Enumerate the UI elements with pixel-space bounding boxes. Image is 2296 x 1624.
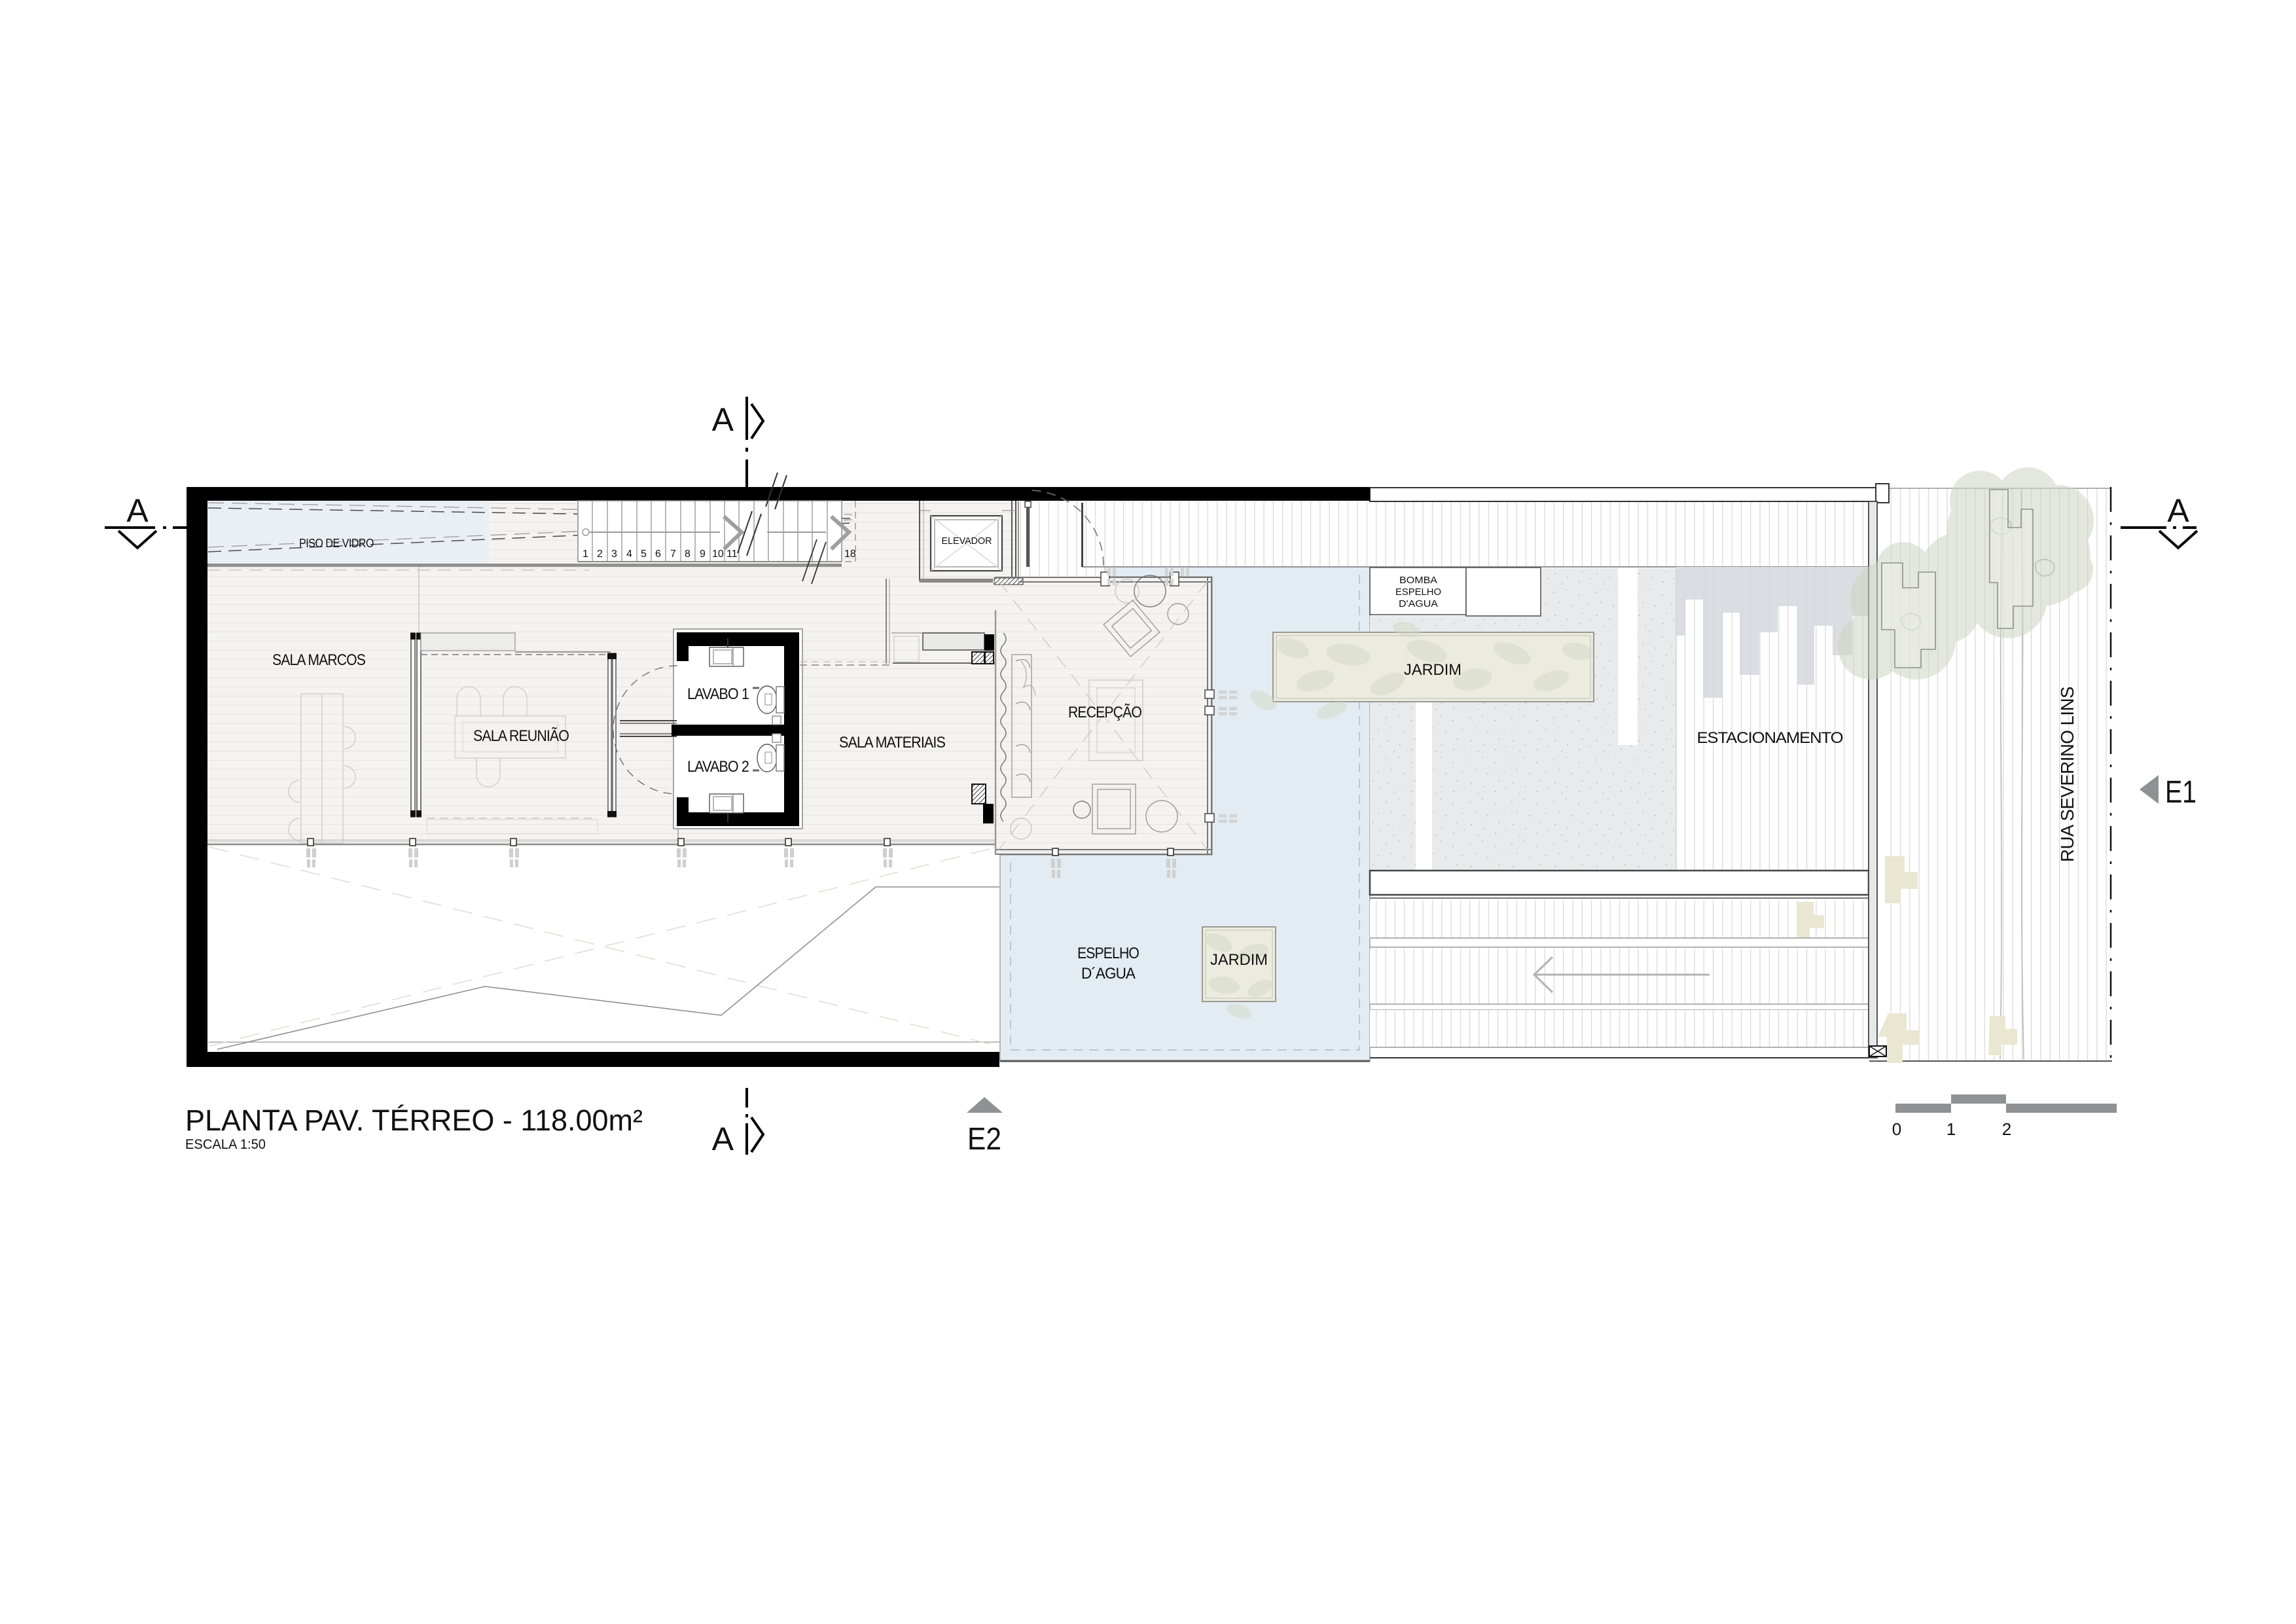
svg-text:1: 1 <box>1946 1119 1956 1139</box>
svg-text:E1: E1 <box>2165 775 2197 810</box>
svg-text:SALA REUNIÃO: SALA REUNIÃO <box>473 727 569 745</box>
svg-text:PLANTA PAV. TÉRREO - 118.00m²: PLANTA PAV. TÉRREO - 118.00m² <box>185 1104 643 1137</box>
svg-text:6: 6 <box>655 549 661 560</box>
svg-text:A: A <box>712 1121 734 1157</box>
svg-text:10: 10 <box>712 549 724 560</box>
svg-text:ELEVADOR: ELEVADOR <box>942 535 992 547</box>
svg-text:LAVABO 1: LAVABO 1 <box>687 685 749 703</box>
svg-text:PISO DE VIDRO: PISO DE VIDRO <box>299 537 374 550</box>
svg-text:ESCALA 1:50: ESCALA 1:50 <box>185 1137 266 1152</box>
svg-text:D´AGUA: D´AGUA <box>1081 965 1136 983</box>
svg-text:A: A <box>712 401 734 438</box>
svg-text:2: 2 <box>2002 1119 2011 1139</box>
svg-text:A: A <box>126 492 149 529</box>
svg-text:ESPELHO: ESPELHO <box>1395 586 1441 598</box>
svg-text:D'AGUA: D'AGUA <box>1399 598 1438 609</box>
svg-text:LAVABO 2: LAVABO 2 <box>687 758 749 776</box>
svg-text:1: 1 <box>583 549 588 560</box>
svg-text:7: 7 <box>670 549 676 560</box>
svg-text:JARDIM: JARDIM <box>1404 661 1462 679</box>
svg-text:8: 8 <box>685 549 691 560</box>
svg-text:4: 4 <box>626 549 632 560</box>
svg-text:JARDIM: JARDIM <box>1210 951 1268 969</box>
svg-text:2: 2 <box>597 549 603 560</box>
svg-text:RECEPÇÃO: RECEPÇÃO <box>1068 704 1141 721</box>
svg-text:ESTACIONAMENTO: ESTACIONAMENTO <box>1697 729 1843 747</box>
svg-text:SALA MARCOS: SALA MARCOS <box>272 651 365 669</box>
svg-text:18: 18 <box>844 549 856 560</box>
svg-text:RUA SEVERINO LINS: RUA SEVERINO LINS <box>2057 687 2077 862</box>
svg-text:A: A <box>2167 492 2189 529</box>
svg-text:5: 5 <box>641 549 647 560</box>
svg-text:E2: E2 <box>967 1122 1001 1157</box>
svg-text:ESPELHO: ESPELHO <box>1077 945 1139 962</box>
svg-text:9: 9 <box>700 549 706 560</box>
svg-text:11: 11 <box>726 549 738 560</box>
svg-text:0: 0 <box>1892 1119 1901 1139</box>
svg-text:SALA MATERIAIS: SALA MATERIAIS <box>839 734 945 751</box>
svg-text:BOMBA: BOMBA <box>1399 575 1437 586</box>
svg-text:3: 3 <box>611 549 617 560</box>
